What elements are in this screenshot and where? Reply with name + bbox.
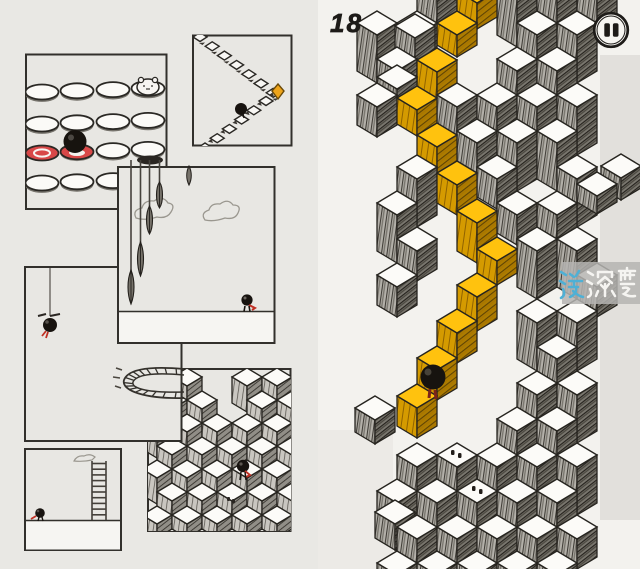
- svg-text:18: 18: [330, 8, 363, 38]
